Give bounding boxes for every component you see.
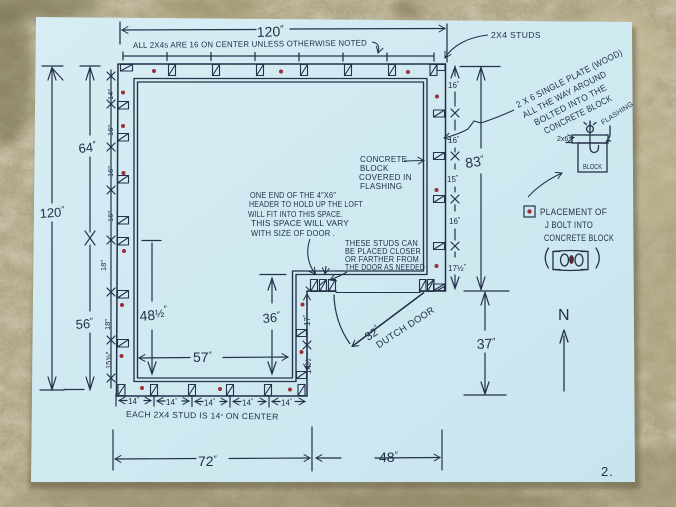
svg-text:14″: 14″	[106, 89, 115, 100]
svg-text:J BOLT INTO: J BOLT INTO	[545, 220, 593, 230]
svg-text:BLOCK: BLOCK	[360, 164, 389, 173]
svg-text:BLOCK: BLOCK	[583, 164, 602, 171]
svg-text:WILL FIT INTO THIS SPACE.: WILL FIT INTO THIS SPACE.	[248, 210, 343, 219]
svg-text:THE DOOR AS NEEDED: THE DOOR AS NEEDED	[345, 263, 425, 272]
svg-text:HEADER TO HOLD UP THE LOFT: HEADER TO HOLD UP THE LOFT	[249, 200, 363, 209]
svg-text:CONCRETE: CONCRETE	[360, 155, 407, 164]
svg-text:16″: 16″	[106, 166, 115, 177]
svg-text:PLACEMENT OF: PLACEMENT OF	[540, 207, 607, 217]
svg-text:18″: 18″	[99, 260, 108, 271]
svg-text:N: N	[558, 307, 570, 324]
svg-text:WITH SIZE OF DOOR .: WITH SIZE OF DOOR .	[251, 229, 335, 238]
svg-text:14½: 14½	[304, 358, 313, 374]
svg-text:15⅝″: 15⅝″	[104, 351, 113, 369]
svg-text:2.: 2.	[601, 464, 614, 479]
svg-text:18″: 18″	[103, 319, 112, 330]
svg-text:120″: 120″	[257, 23, 285, 40]
svg-text:THIS SPACE WILL VARY: THIS SPACE WILL VARY	[251, 219, 349, 228]
svg-text:COVERED IN: COVERED IN	[359, 173, 412, 182]
svg-text:16″: 16″	[106, 211, 115, 222]
svg-text:2X4 STUDS: 2X4 STUDS	[491, 30, 541, 40]
svg-text:ONE END OF THE 4″X6″: ONE END OF THE 4″X6″	[250, 191, 336, 200]
svg-text:CONCRETE BLOCK: CONCRETE BLOCK	[544, 233, 614, 243]
svg-text:16″: 16″	[106, 125, 115, 136]
svg-text:FLASHING: FLASHING	[360, 182, 402, 191]
